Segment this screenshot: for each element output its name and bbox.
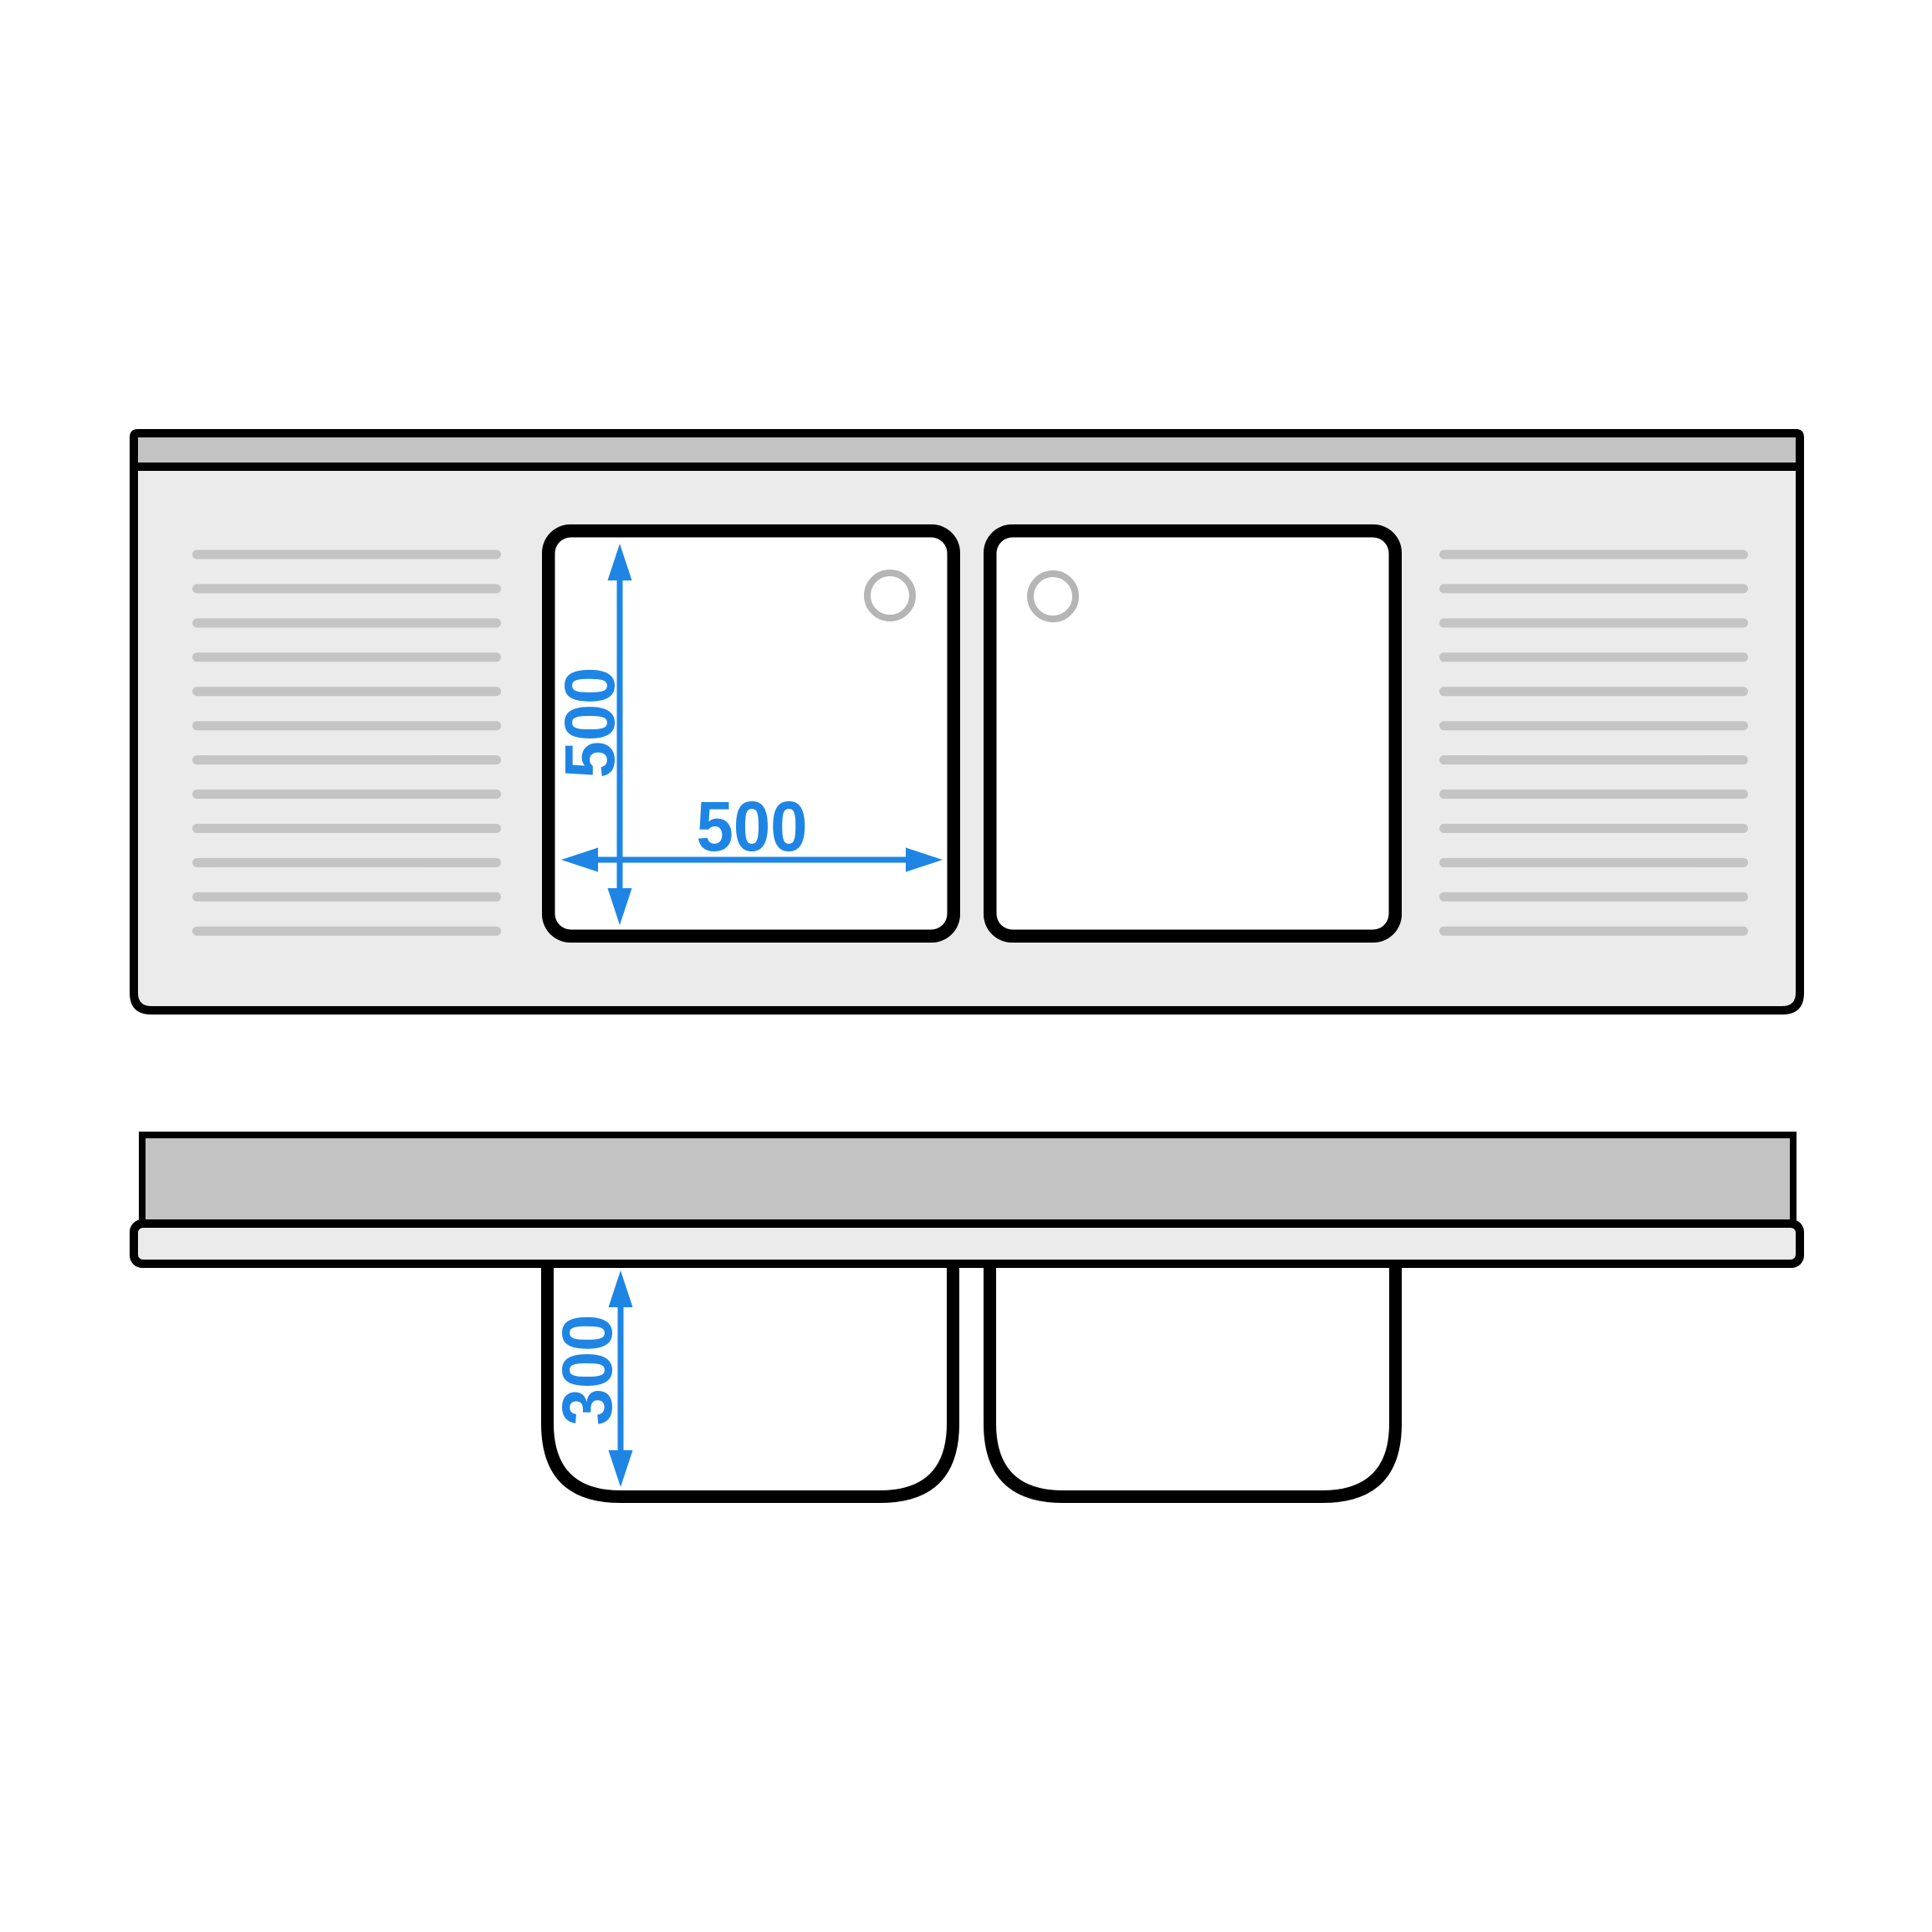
svg-text:500: 500 bbox=[550, 667, 629, 779]
svg-text:300: 300 bbox=[548, 1315, 626, 1426]
svg-text:500: 500 bbox=[697, 787, 808, 866]
